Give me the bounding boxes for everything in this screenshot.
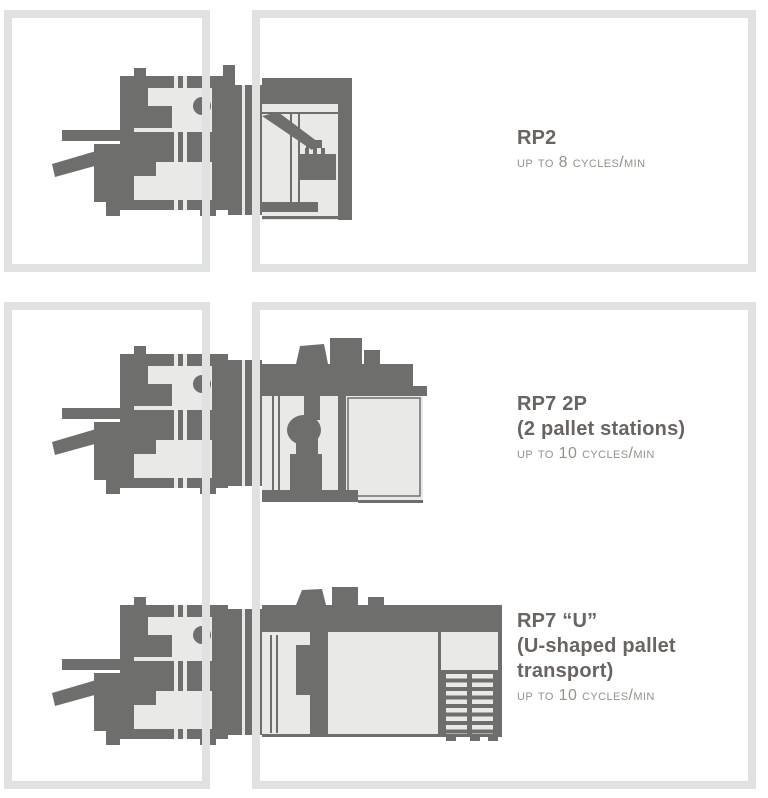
model-subtitle: (U-shaped pallet transport) <box>517 634 709 684</box>
label-rp7-u: RP7 “U” (U-shaped pallet transport) UP T… <box>517 609 709 707</box>
panel-frame-top-left <box>4 10 210 272</box>
label-rp2: RP2 UP TO 8 CYCLES/MIN <box>517 126 709 174</box>
panel-frame-bottom-right <box>252 302 756 789</box>
model-throughput: UP TO 8 CYCLES/MIN <box>517 152 709 174</box>
model-title: RP2 <box>517 126 709 151</box>
page-canvas: RP2 UP TO 8 CYCLES/MIN RP7 2P (2 pallet … <box>0 0 768 798</box>
label-rp7-2p: RP7 2P (2 pallet stations) UP TO 10 CYCL… <box>517 392 709 465</box>
model-subtitle: (2 pallet stations) <box>517 417 709 442</box>
model-throughput: UP TO 10 CYCLES/MIN <box>517 443 709 465</box>
model-throughput: UP TO 10 CYCLES/MIN <box>517 685 709 707</box>
model-title: RP7 2P <box>517 392 709 417</box>
model-title: RP7 “U” <box>517 609 709 634</box>
panel-frame-bottom-left <box>4 302 210 789</box>
